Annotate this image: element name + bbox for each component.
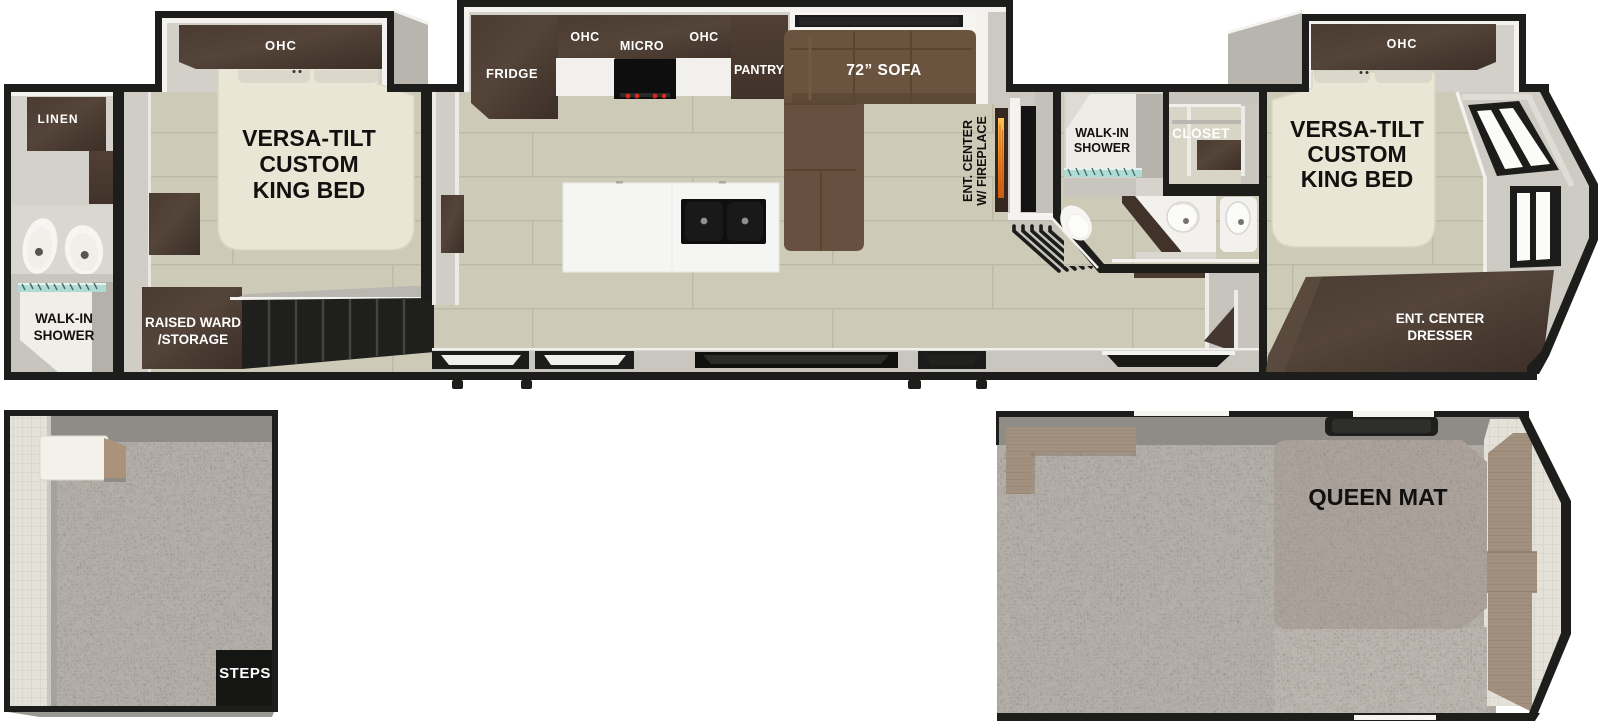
- svg-text:STEPS: STEPS: [219, 665, 271, 682]
- svg-text:QUEEN MAT: QUEEN MAT: [1308, 484, 1448, 510]
- svg-text:DRESSER: DRESSER: [1407, 328, 1473, 343]
- svg-text:72” SOFA: 72” SOFA: [846, 62, 922, 79]
- svg-text:PANTRY: PANTRY: [734, 63, 785, 77]
- svg-text:W/ FIREPLACE: W/ FIREPLACE: [975, 116, 989, 206]
- svg-text:WALK-IN: WALK-IN: [35, 311, 93, 326]
- svg-text:CUSTOM: CUSTOM: [1307, 141, 1406, 167]
- svg-text:KING BED: KING BED: [1301, 166, 1413, 192]
- svg-text:ENT. CENTER: ENT. CENTER: [1396, 311, 1485, 326]
- svg-text:SHOWER: SHOWER: [1074, 141, 1130, 155]
- svg-text:LINEN: LINEN: [38, 112, 79, 126]
- svg-text:CLOSET: CLOSET: [1172, 126, 1230, 141]
- svg-text:SHOWER: SHOWER: [34, 328, 95, 343]
- svg-text:OHC: OHC: [265, 38, 297, 53]
- svg-text:OHC: OHC: [570, 30, 599, 44]
- svg-text:ENT. CENTER: ENT. CENTER: [961, 120, 975, 202]
- svg-text:FRIDGE: FRIDGE: [486, 66, 538, 81]
- svg-text:RAISED WARD: RAISED WARD: [145, 315, 241, 330]
- svg-text:MICRO: MICRO: [620, 39, 664, 53]
- svg-text:OHC: OHC: [689, 30, 718, 44]
- svg-text:/STORAGE: /STORAGE: [158, 332, 228, 347]
- svg-text:CUSTOM: CUSTOM: [259, 151, 358, 177]
- svg-text:OHC: OHC: [1387, 37, 1418, 51]
- svg-text:KING BED: KING BED: [253, 177, 365, 203]
- svg-text:VERSA-TILT: VERSA-TILT: [242, 125, 376, 151]
- svg-text:WALK-IN: WALK-IN: [1075, 126, 1128, 140]
- svg-text:VERSA-TILT: VERSA-TILT: [1290, 116, 1424, 142]
